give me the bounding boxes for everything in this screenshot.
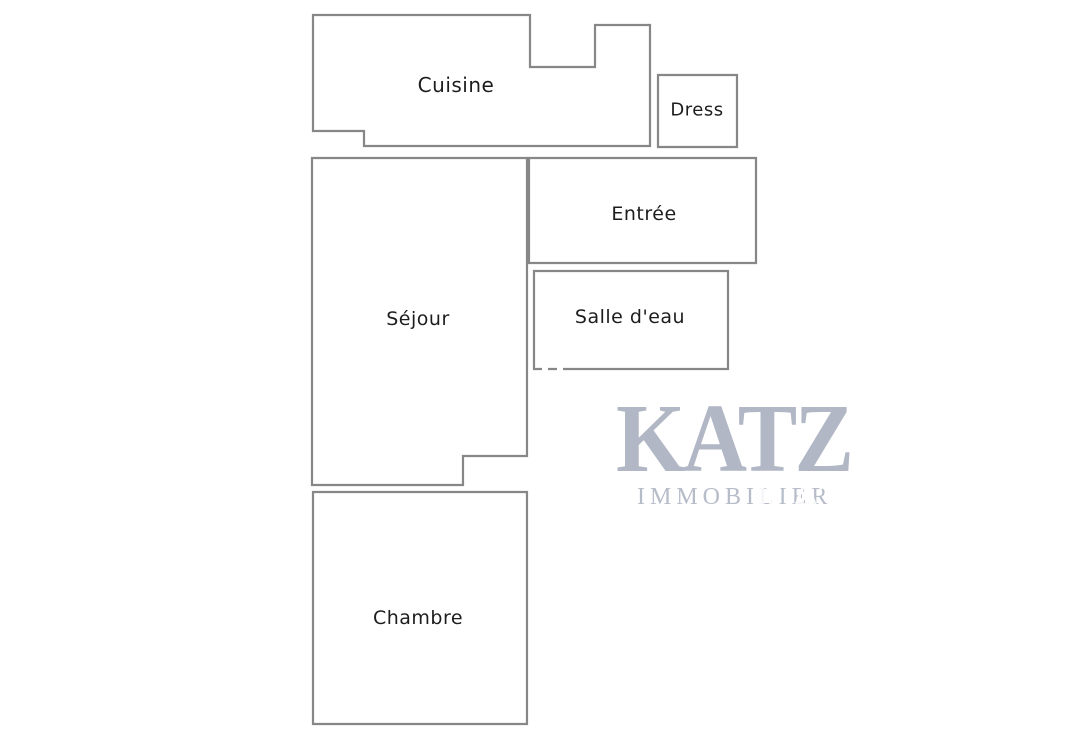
room-label-salle-deau: Salle d'eau xyxy=(575,306,685,328)
room-label-cuisine: Cuisine xyxy=(418,73,495,97)
room-label-sejour: Séjour xyxy=(386,308,450,330)
floorplan-canvas: KATZ IMMOBILIER Cuisine Dress Entrée Séj… xyxy=(0,0,1066,735)
room-label-chambre: Chambre xyxy=(373,607,463,629)
room-label-dress: Dress xyxy=(670,100,723,121)
floorplan-svg xyxy=(0,0,1066,735)
room-label-entree: Entrée xyxy=(611,203,676,225)
